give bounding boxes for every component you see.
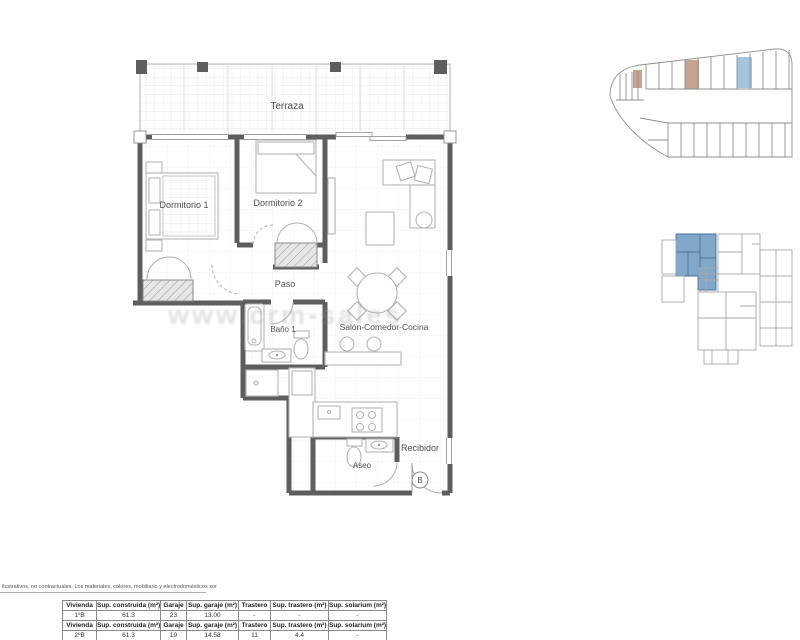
entrance-marker: B (412, 472, 428, 488)
cell-sup-solarium: - (329, 631, 387, 640)
cell-sup-trastero: - (271, 611, 329, 621)
col-garaje: Garaje (161, 601, 187, 611)
cell-vivienda: 1ºB (63, 611, 97, 621)
col-sup-trastero: Sup. trastero (m²) (271, 601, 329, 611)
col-trastero: Trastero (239, 601, 271, 611)
col-sup-solarium: Sup. solarium (m²) (329, 601, 387, 611)
cell-sup-garaje: 13.00 (187, 611, 239, 621)
cell-sup-trastero: 4.4 (271, 631, 329, 640)
col-garaje: Garaje (161, 621, 187, 631)
garage-key-plan (610, 49, 792, 157)
cell-garaje: 23 (161, 611, 187, 621)
spec-tables: Vivienda Sup. construida (m²) Garaje Sup… (62, 600, 386, 640)
spec-table-vivienda-2b: Vivienda Sup. construida (m²) Garaje Sup… (62, 620, 387, 640)
building-key-plan (662, 234, 792, 364)
cell-vivienda: 2ºB (63, 631, 97, 640)
col-sup-garaje: Sup. garaje (m²) (187, 621, 239, 631)
col-sup-solarium: Sup. solarium (m²) (329, 621, 387, 631)
cell-sup-solarium: - (329, 611, 387, 621)
page: B Terraza Dormitorio 1 Dormitorio 2 Paso… (0, 0, 800, 640)
spec-table-vivienda-1b: Vivienda Sup. construida (m²) Garaje Sup… (62, 600, 387, 621)
room-label-recibidor: Recibidor (401, 443, 439, 453)
col-sup-garaje: Sup. garaje (m²) (187, 601, 239, 611)
disclaimer-text: ilustrativos, no contractuales. Los mate… (2, 584, 217, 590)
col-vivienda: Vivienda (63, 601, 97, 611)
watermark: www.crm-sales (168, 300, 508, 331)
room-label-paso: Paso (275, 279, 296, 289)
table-row: 1ºB 61.3 23 13.00 - - - (63, 611, 387, 621)
col-sup-construida: Sup. construida (m²) (97, 621, 161, 631)
garage-trastero-highlight (633, 70, 642, 88)
garage-stall-beige-highlight (685, 60, 699, 89)
col-sup-construida: Sup. construida (m²) (97, 601, 161, 611)
entrance-letter: B (417, 476, 422, 485)
table-row: 2ºB 61.3 19 14.58 11 4.4 - (63, 631, 387, 640)
cell-garaje: 19 (161, 631, 187, 640)
cell-trastero: - (239, 611, 271, 621)
col-sup-trastero: Sup. trastero (m²) (271, 621, 329, 631)
room-label-aseo: Aseo (353, 461, 372, 470)
col-vivienda: Vivienda (63, 621, 97, 631)
cell-sup-construida: 61.3 (97, 611, 161, 621)
cell-trastero: 11 (239, 631, 271, 640)
room-label-dormitorio2: Dormitorio 2 (253, 198, 302, 208)
cell-sup-construida: 61.3 (97, 631, 161, 640)
disclaimer-rule (0, 592, 206, 593)
cell-sup-garaje: 14.58 (187, 631, 239, 640)
keyplan-unit-highlight (676, 234, 716, 290)
room-label-dormitorio1: Dormitorio 1 (159, 200, 208, 210)
room-label-terraza: Terraza (270, 101, 304, 112)
col-trastero: Trastero (239, 621, 271, 631)
